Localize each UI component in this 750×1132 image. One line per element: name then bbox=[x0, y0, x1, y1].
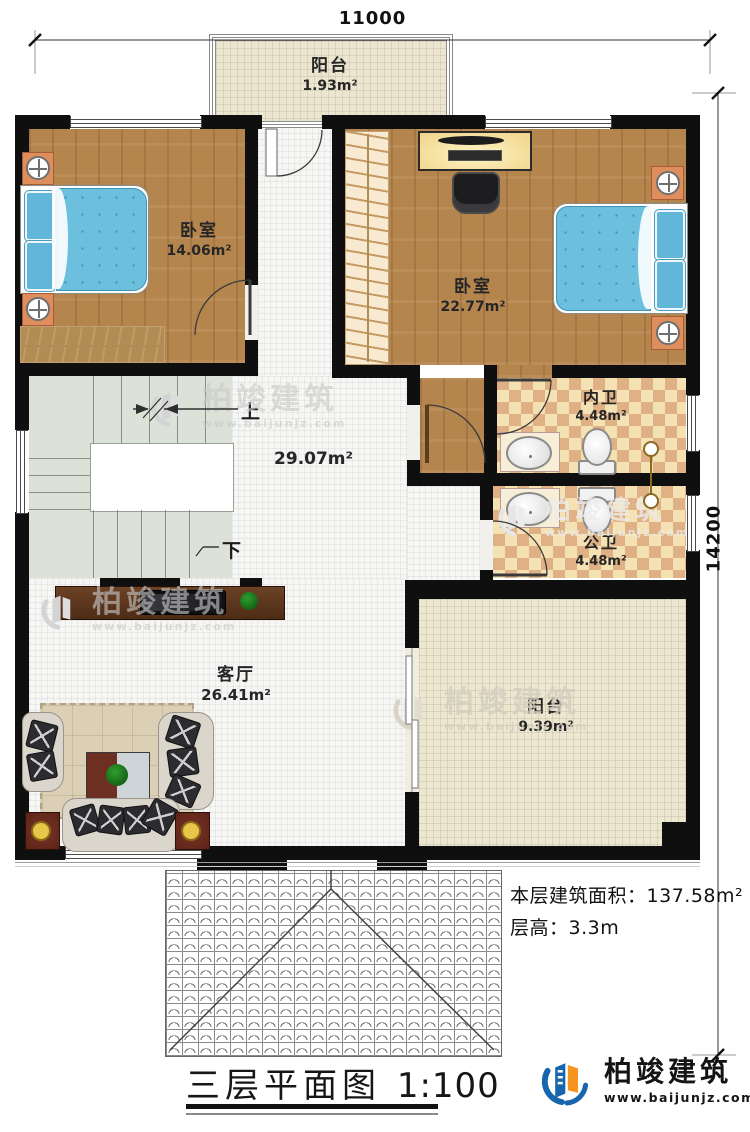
soundbar-icon bbox=[448, 150, 502, 161]
wall bbox=[200, 115, 262, 129]
floor-area-value: 137.58m² bbox=[647, 885, 744, 907]
balcony-top-label: 阳台 1.93m² bbox=[270, 55, 390, 95]
room-name: 阳台 bbox=[311, 55, 349, 77]
desk-chair bbox=[452, 172, 500, 214]
bath-inner-label: 内卫 4.48m² bbox=[556, 388, 646, 426]
floor-height-label: 层高： bbox=[510, 917, 569, 939]
table-lamp-icon bbox=[31, 821, 51, 841]
brand-logo: 柏竣建筑 www.baijunjz.com bbox=[540, 1054, 750, 1108]
sink-icon bbox=[506, 436, 552, 470]
living-label: 客厅 26.41m² bbox=[190, 664, 282, 706]
wall bbox=[15, 512, 29, 860]
wall bbox=[407, 473, 686, 486]
dimension-height: 14200 bbox=[704, 489, 725, 589]
window bbox=[16, 430, 28, 514]
lamp-icon bbox=[656, 321, 680, 345]
window bbox=[485, 116, 612, 128]
title-underline-thin bbox=[186, 1113, 438, 1115]
wall bbox=[552, 365, 686, 378]
bedroom-right-label: 卧室 22.77m² bbox=[427, 276, 519, 316]
room-area: 26.41m² bbox=[201, 686, 271, 706]
stairs-up-label: 上 bbox=[241, 397, 260, 424]
room-area: 22.77m² bbox=[440, 298, 505, 316]
wall-corner-post bbox=[662, 822, 700, 860]
brand-name: 柏竣建筑 bbox=[604, 1058, 750, 1086]
lamp-icon bbox=[656, 171, 680, 195]
door-threshold bbox=[497, 365, 552, 378]
wall bbox=[407, 378, 420, 405]
room-area: 1.93m² bbox=[302, 77, 357, 95]
blanket bbox=[556, 206, 651, 311]
room-name: 内卫 bbox=[583, 388, 619, 409]
floor-plan-canvas: 阳台 1.93m² 卧室 14. bbox=[0, 0, 750, 1132]
floor-height-value: 3.3m bbox=[569, 917, 620, 939]
wall bbox=[484, 378, 497, 473]
room-name: 卧室 bbox=[454, 276, 492, 298]
brand-url: www.baijunjz.com bbox=[604, 1090, 750, 1105]
wall bbox=[405, 599, 419, 648]
wall bbox=[245, 340, 258, 376]
stair-flight-left bbox=[29, 443, 90, 510]
window bbox=[70, 116, 202, 128]
wall bbox=[245, 129, 258, 285]
room-area: 29.07m² bbox=[274, 448, 353, 470]
sink-icon bbox=[506, 492, 552, 526]
wall bbox=[686, 450, 700, 495]
floor-height-note: 层高：3.3m bbox=[510, 912, 745, 944]
eave-line bbox=[15, 862, 700, 863]
wall bbox=[480, 486, 493, 520]
hall-strip-floor bbox=[407, 486, 480, 580]
hall-area-label: 29.07m² bbox=[266, 448, 361, 470]
wall bbox=[407, 460, 420, 473]
floor-area-label: 本层建筑面积： bbox=[510, 885, 647, 907]
stairs-down-label: 下 bbox=[222, 536, 241, 563]
wall bbox=[484, 365, 497, 378]
wall bbox=[405, 580, 700, 599]
plant-icon bbox=[106, 764, 128, 786]
room-name: 阳台 bbox=[527, 696, 565, 718]
pillow bbox=[655, 210, 685, 260]
wardrobe bbox=[20, 326, 165, 363]
room-area: 4.48m² bbox=[575, 409, 626, 426]
window bbox=[687, 395, 699, 452]
window bbox=[687, 495, 699, 552]
balcony-bottom-label: 阳台 9.39m² bbox=[500, 696, 592, 736]
bedroom-vestibule-floor bbox=[420, 378, 484, 473]
door-threshold bbox=[480, 520, 493, 570]
bath-public-label: 公卫 4.48m² bbox=[556, 533, 646, 571]
door-threshold bbox=[245, 285, 258, 340]
stair-landing bbox=[90, 443, 234, 512]
brand-logo-icon bbox=[540, 1054, 594, 1108]
pillow bbox=[655, 260, 685, 310]
plan-scale: 1:100 bbox=[397, 1066, 500, 1106]
lamp-icon bbox=[26, 156, 50, 180]
sheet-fold bbox=[638, 206, 654, 309]
title-underline bbox=[186, 1104, 438, 1109]
wardrobe bbox=[345, 131, 389, 365]
room-area: 9.39m² bbox=[518, 718, 573, 736]
wall bbox=[15, 363, 245, 376]
corridor-floor bbox=[258, 115, 332, 378]
pillow bbox=[25, 191, 55, 241]
tv-on-desk-icon bbox=[438, 136, 504, 145]
room-area: 14.06m² bbox=[166, 242, 231, 260]
wall bbox=[345, 365, 420, 378]
dimension-width: 11000 bbox=[35, 8, 710, 29]
floor-area-note: 本层建筑面积：137.58m² bbox=[510, 880, 745, 912]
stair-flight-top bbox=[93, 376, 232, 443]
wall bbox=[322, 115, 485, 129]
room-name: 客厅 bbox=[217, 664, 255, 686]
room-name: 公卫 bbox=[583, 533, 619, 554]
floor-notes: 本层建筑面积：137.58m² 层高：3.3m bbox=[510, 880, 745, 945]
table-lamp-icon bbox=[181, 821, 201, 841]
tv-icon bbox=[140, 590, 226, 615]
plan-title: 三层平面图 1:100 bbox=[186, 1058, 500, 1107]
roof-hatch bbox=[165, 870, 502, 1057]
wall bbox=[405, 792, 419, 846]
pillow bbox=[25, 241, 55, 291]
bedroom-left-label: 卧室 14.06m² bbox=[153, 220, 245, 260]
room-area: 4.48m² bbox=[575, 554, 626, 571]
room-name: 卧室 bbox=[180, 220, 218, 242]
toilet-icon bbox=[582, 496, 612, 534]
toilet-icon bbox=[582, 428, 612, 466]
sofa-cushion bbox=[96, 804, 126, 835]
sofa-cushion bbox=[26, 750, 58, 782]
stair-flight-bottom bbox=[93, 510, 213, 578]
plant-icon bbox=[240, 592, 258, 610]
sofa-cushion bbox=[166, 746, 200, 778]
door-threshold bbox=[407, 405, 420, 460]
wall bbox=[332, 129, 345, 378]
plan-title-text: 三层平面图 bbox=[186, 1066, 381, 1106]
sliding-door-gap bbox=[405, 648, 419, 792]
eave-line bbox=[15, 866, 700, 867]
wall bbox=[686, 115, 700, 395]
lamp-icon bbox=[26, 297, 50, 321]
blanket bbox=[56, 188, 147, 291]
